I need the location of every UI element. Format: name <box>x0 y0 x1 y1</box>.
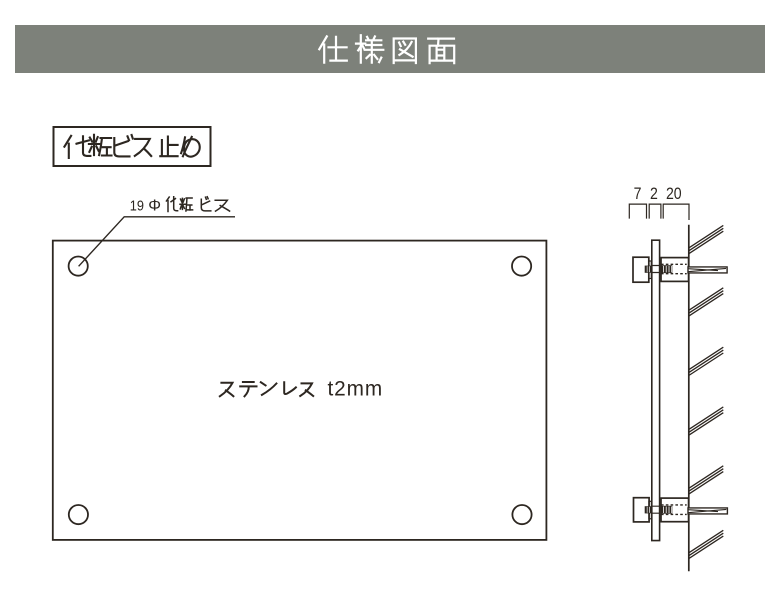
svg-text:7: 7 <box>634 185 642 203</box>
svg-text:2: 2 <box>650 185 658 203</box>
svg-text:t2mm: t2mm <box>328 378 384 401</box>
svg-text:Φ: Φ <box>148 197 161 214</box>
svg-text:19: 19 <box>130 196 144 213</box>
svg-text:20: 20 <box>666 185 682 203</box>
